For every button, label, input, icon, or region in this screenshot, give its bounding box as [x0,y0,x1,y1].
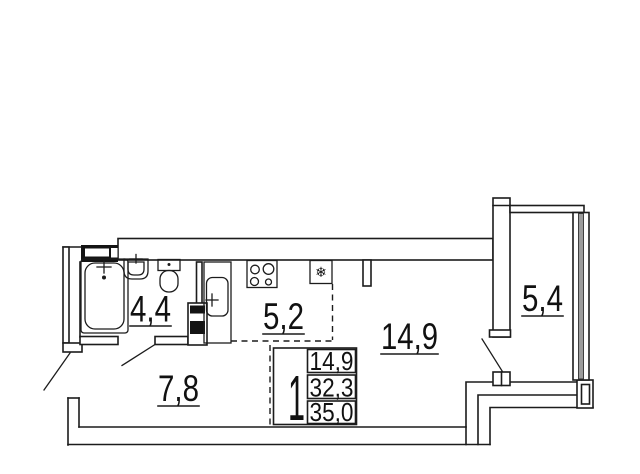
balcony-column-cap [490,330,511,337]
balcony-area-label: 5,4 [522,278,563,319]
bathroom-kitchen-wall [197,262,203,305]
bottom-step-mid [478,395,587,445]
bathtub-drain [102,276,106,280]
top-wall [118,239,493,261]
duct-pillar-band-1 [190,306,205,314]
toilet-button [168,263,171,266]
stove-burner-4 [266,279,272,285]
bathtub [81,259,128,333]
bathroom-wall-right [155,337,188,345]
sink-bowl-inner [128,262,144,275]
floor-plan-page: ❄ 1 14,9 32,3 35,0 4,4 5,2 14,9 7,8 5,4 [0,0,640,474]
bathroom-area-label: 4,4 [130,289,171,330]
entry-door-swing [44,353,70,390]
balcony-glazing-band [579,214,584,380]
stamp-total-area: 35,0 [310,397,354,427]
stamp-living-area: 14,9 [310,346,354,376]
area-stamp: 1 14,9 32,3 35,0 [274,346,357,434]
balcony-door-swing [482,339,504,374]
kitchen-area-label: 5,2 [263,296,304,337]
hallway-area-label: 7,8 [158,368,199,409]
toilet [158,260,180,293]
vent-slot-1 [85,249,109,257]
left-wall-end-cap [63,343,82,352]
stove-burner-1 [251,265,260,274]
kitchen-sink-bowl [207,278,229,317]
snowflake-icon: ❄ [315,264,327,280]
floor-plan: ❄ 1 14,9 32,3 35,0 4,4 5,2 14,9 7,8 5,4 [0,0,640,474]
bathroom-wall-left [80,337,118,345]
bottom-step-outer [490,408,593,445]
stove-burner-2 [263,264,274,275]
duct-pillar-band-2 [190,321,205,334]
stamp-room-count: 1 [288,362,305,434]
left-wall [63,247,69,343]
bathroom-door-swing [122,345,155,366]
living-area-label: 14,9 [381,316,438,357]
kitchen-counter [204,262,231,343]
stove-burner-3 [251,278,259,286]
refrigerator: ❄ [310,261,332,284]
kitchen-sink [206,278,228,317]
balcony-top-wall [510,206,584,213]
stove [247,261,277,288]
top-wall-stub [363,260,371,286]
vent-slot-2 [111,248,118,258]
balcony-column-wall [493,198,510,337]
